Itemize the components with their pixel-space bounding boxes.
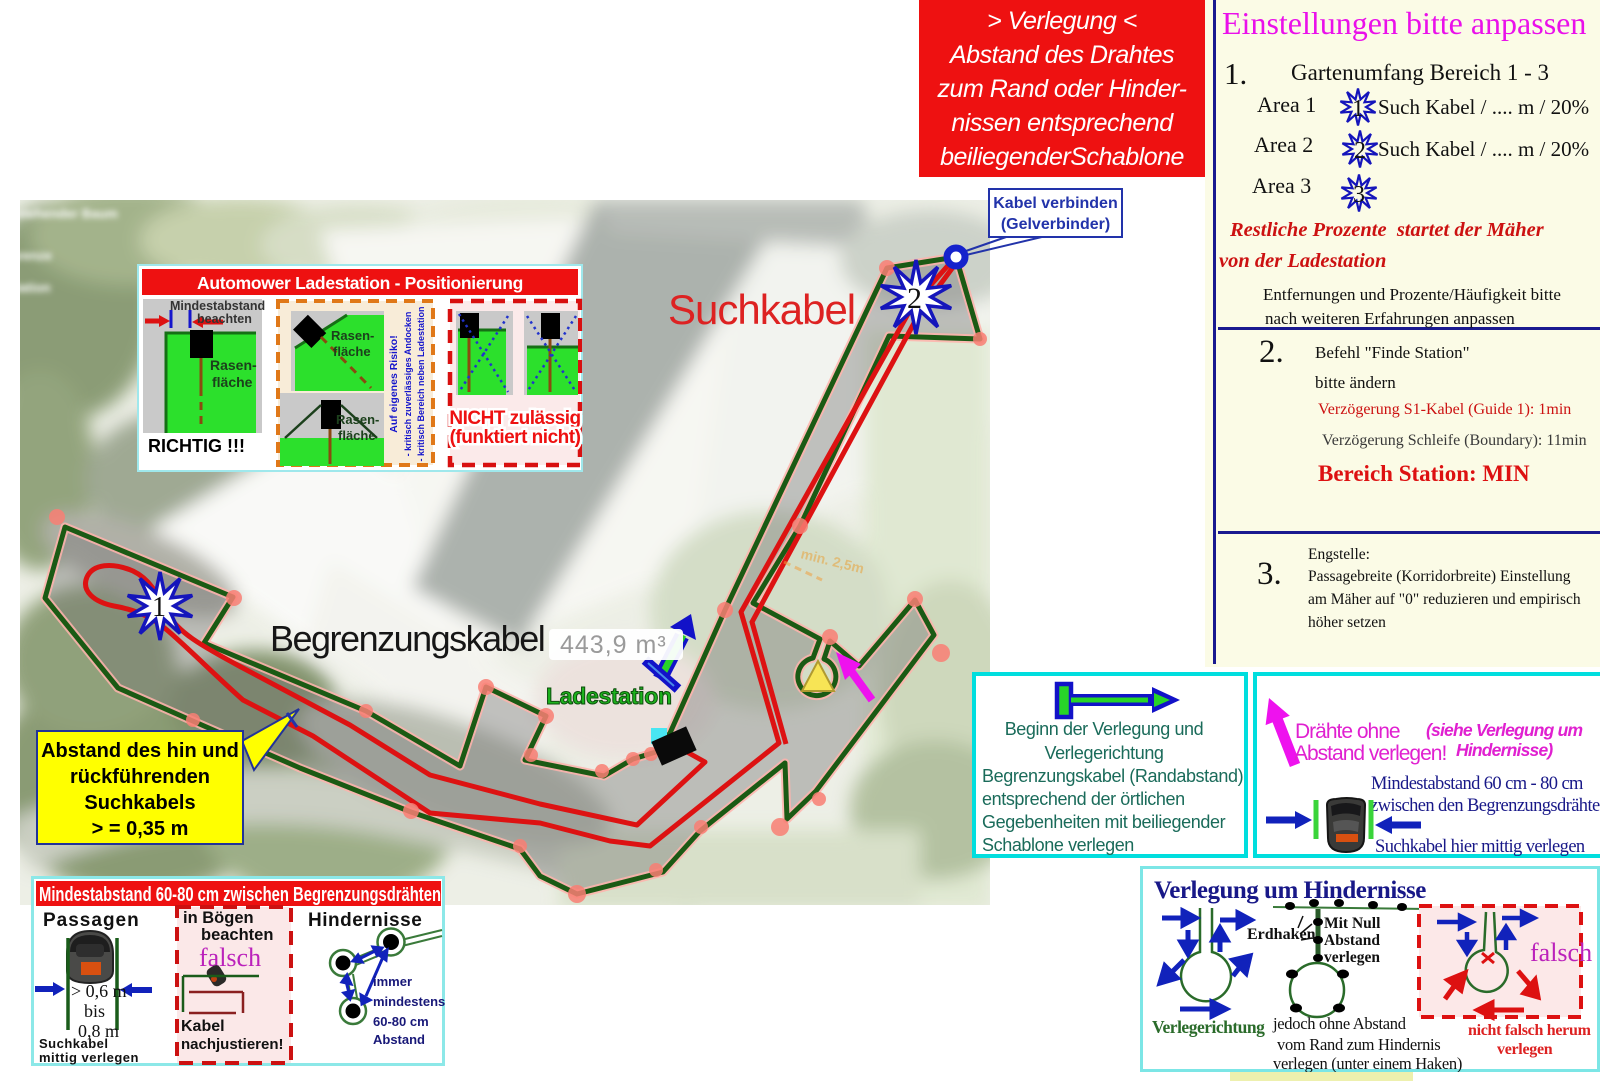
svg-text:nachjustieren!: nachjustieren! — [181, 1036, 284, 1053]
svg-text:Mit Null: Mit Null — [1324, 915, 1381, 932]
svg-text:Hindernisse): Hindernisse) — [1456, 740, 1553, 760]
svg-text:beachten: beachten — [201, 926, 273, 944]
svg-text:falsch: falsch — [1530, 938, 1592, 967]
svg-text:vom Rand zum Hindernis: vom Rand zum Hindernis — [1277, 1035, 1440, 1054]
svg-text:bis: bis — [84, 1001, 105, 1021]
svg-text:station: station — [8, 280, 51, 295]
svg-text:2: 2 — [907, 282, 922, 315]
svg-text:Abstand verlegen!: Abstand verlegen! — [1294, 742, 1446, 765]
svg-text:Hindernisse: Hindernisse — [308, 910, 422, 931]
svg-text:- kritisch Bereich neben Lades: - kritisch Bereich neben Ladestation — [416, 306, 426, 461]
svg-text:Mindestabstand 60 cm - 80 cm: Mindestabstand 60 cm - 80 cm — [1371, 774, 1584, 794]
svg-text:Drähte ohne: Drähte ohne — [1295, 720, 1400, 743]
svg-text:verlegen: verlegen — [1324, 949, 1380, 966]
svg-text:falsch: falsch — [199, 943, 261, 972]
svg-text:jedoch ohne Abstand: jedoch ohne Abstand — [1272, 1014, 1407, 1033]
svg-text:fläche: fläche — [212, 374, 253, 390]
svg-text:Suchkabel hier mittig verlegen: Suchkabel hier mittig verlegen — [1375, 837, 1585, 857]
svg-text:443,9 m³: 443,9 m³ — [560, 631, 667, 659]
svg-text:Auf eigenes Risiko!: Auf eigenes Risiko! — [388, 335, 400, 432]
svg-text:zwischen den Begrenzungsdrähte: zwischen den Begrenzungsdrähten — [1370, 796, 1600, 816]
svg-text:1: 1 — [152, 592, 166, 623]
svg-text:Abstand: Abstand — [1324, 932, 1380, 949]
svg-text:mittig verlegen: mittig verlegen — [39, 1050, 139, 1065]
svg-text:(funktiert nicht): (funktiert nicht) — [450, 427, 581, 448]
svg-text:entsprechend der örtlichen: entsprechend der örtlichen — [982, 789, 1185, 809]
svg-text:verlegen (unter einem Haken): verlegen (unter einem Haken) — [1273, 1054, 1462, 1072]
svg-text:mindestens: mindestens — [373, 994, 445, 1009]
svg-text:Rasen-: Rasen- — [331, 328, 374, 343]
svg-text:Suchkabel: Suchkabel — [668, 286, 855, 333]
svg-text:beachten: beachten — [197, 312, 252, 326]
svg-text:RICHTIG !!!: RICHTIG !!! — [148, 436, 245, 456]
svg-text:NICHT zulässig: NICHT zulässig — [449, 408, 580, 429]
svg-text:fläche: fläche — [338, 428, 376, 443]
svg-text:grenze: grenze — [10, 248, 52, 263]
svg-text:- kritisch zuverlässiges Andoc: - kritisch zuverlässiges Andocken — [403, 312, 413, 457]
svg-text:Begrenzungskabel (Randabstand): Begrenzungskabel (Randabstand) — [982, 766, 1243, 786]
svg-text:Passagen: Passagen — [43, 910, 140, 931]
svg-text:Verlegung um Hindernisse: Verlegung um Hindernisse — [1154, 877, 1426, 904]
svg-text:Abstand: Abstand — [373, 1032, 425, 1047]
svg-text:> 0,6 m: > 0,6 m — [71, 981, 127, 1001]
svg-text:Rasen-: Rasen- — [210, 357, 257, 373]
svg-text:1: 1 — [1352, 96, 1364, 122]
svg-text:nicht falsch herum: nicht falsch herum — [1468, 1022, 1592, 1039]
svg-text:Kabel: Kabel — [181, 1018, 225, 1035]
svg-text:3: 3 — [1353, 182, 1365, 208]
svg-text:Verlegerichtung: Verlegerichtung — [1044, 743, 1163, 763]
svg-text:(siehe Verlegung um: (siehe Verlegung um — [1426, 720, 1583, 740]
svg-text:Schablone verlegen: Schablone verlegen — [982, 835, 1134, 855]
svg-text:Erdhaken: Erdhaken — [1247, 926, 1316, 943]
svg-text:immer: immer — [373, 974, 412, 989]
svg-text:Mindestabstand: Mindestabstand — [170, 299, 265, 313]
svg-text:in Bögen: in Bögen — [183, 909, 254, 927]
svg-text:Beginn der Verlegung und: Beginn der Verlegung und — [1005, 719, 1204, 739]
svg-text:Suchkabel: Suchkabel — [39, 1036, 109, 1051]
svg-text:verlegen: verlegen — [1497, 1041, 1553, 1058]
svg-text:Rasen-: Rasen- — [336, 412, 379, 427]
svg-text:stehender Baum: stehender Baum — [16, 206, 118, 221]
svg-text:60-80 cm: 60-80 cm — [373, 1014, 429, 1029]
svg-text:fläche: fläche — [333, 344, 371, 359]
svg-text:Gegebenheiten mit beiliegender: Gegebenheiten mit beiliegender — [982, 812, 1226, 832]
svg-text:Mindestabstand 60-80 cm zwisch: Mindestabstand 60-80 cm zwischen Begrenz… — [39, 884, 441, 906]
svg-text:Automower Ladestation - Positi: Automower Ladestation - Positionierung — [197, 273, 523, 293]
svg-text:2: 2 — [1354, 138, 1366, 164]
svg-text:Verlegerichtung: Verlegerichtung — [1152, 1017, 1265, 1037]
svg-text:Begrenzungskabel: Begrenzungskabel — [270, 618, 544, 659]
svg-text:Ladestation: Ladestation — [546, 683, 672, 709]
